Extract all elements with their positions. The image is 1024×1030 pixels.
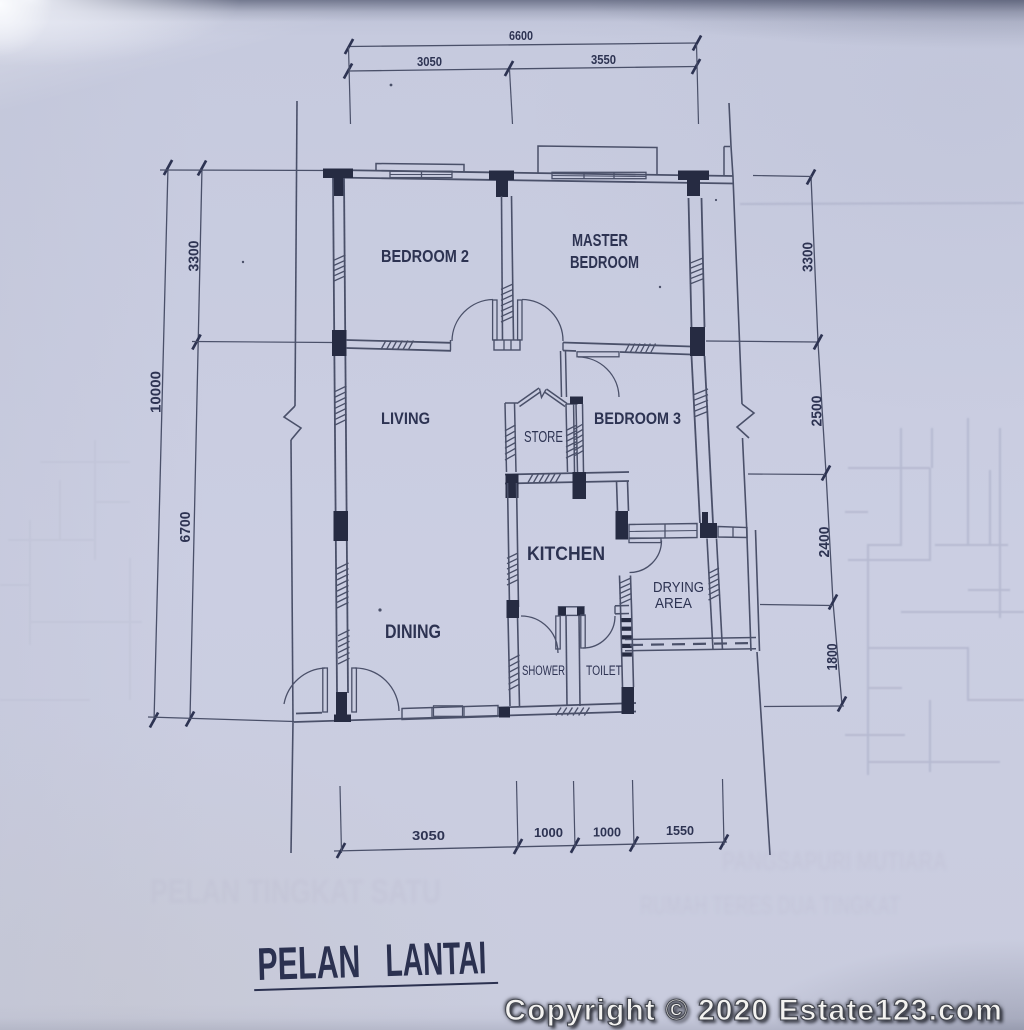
svg-text:6700: 6700 [178, 512, 194, 543]
svg-text:DRYING: DRYING [653, 580, 704, 596]
svg-text:2500: 2500 [810, 396, 826, 427]
svg-text:PANGSAPURI MUTIARA: PANGSAPURI MUTIARA [722, 846, 947, 876]
svg-text:KITCHEN: KITCHEN [527, 544, 605, 565]
svg-text:3550: 3550 [591, 53, 616, 67]
svg-text:BEDROOM 2: BEDROOM 2 [381, 246, 469, 266]
svg-text:10000: 10000 [149, 371, 165, 413]
svg-text:3050: 3050 [412, 829, 445, 843]
svg-text:2400: 2400 [817, 527, 833, 558]
svg-text:MASTER: MASTER [572, 230, 628, 250]
svg-text:6600: 6600 [509, 29, 533, 43]
svg-text:BEDROOM 3: BEDROOM 3 [594, 409, 681, 428]
svg-text:3300: 3300 [187, 241, 203, 272]
svg-text:AREA: AREA [655, 596, 692, 612]
svg-text:1000: 1000 [534, 826, 563, 840]
svg-text:1800: 1800 [825, 644, 841, 671]
svg-text:RUMAH TERES DUA TINGKAT: RUMAH TERES DUA TINGKAT [640, 890, 900, 920]
svg-text:LIVING: LIVING [381, 409, 430, 428]
svg-text:1000: 1000 [593, 826, 621, 840]
svg-text:STORE: STORE [524, 429, 563, 446]
svg-text:SHOWER: SHOWER [522, 663, 565, 678]
svg-text:BEDROOM: BEDROOM [570, 252, 639, 272]
svg-text:3050: 3050 [417, 55, 442, 69]
svg-text:PELAN: PELAN [257, 935, 361, 990]
svg-text:1550: 1550 [666, 824, 694, 838]
svg-text:3300: 3300 [801, 242, 817, 272]
svg-text:TOILET: TOILET [586, 663, 622, 678]
svg-text:DINING: DINING [385, 622, 441, 643]
svg-text:LANTAI: LANTAI [385, 931, 487, 986]
svg-text:PELAN TINGKAT SATU: PELAN TINGKAT SATU [150, 873, 441, 911]
